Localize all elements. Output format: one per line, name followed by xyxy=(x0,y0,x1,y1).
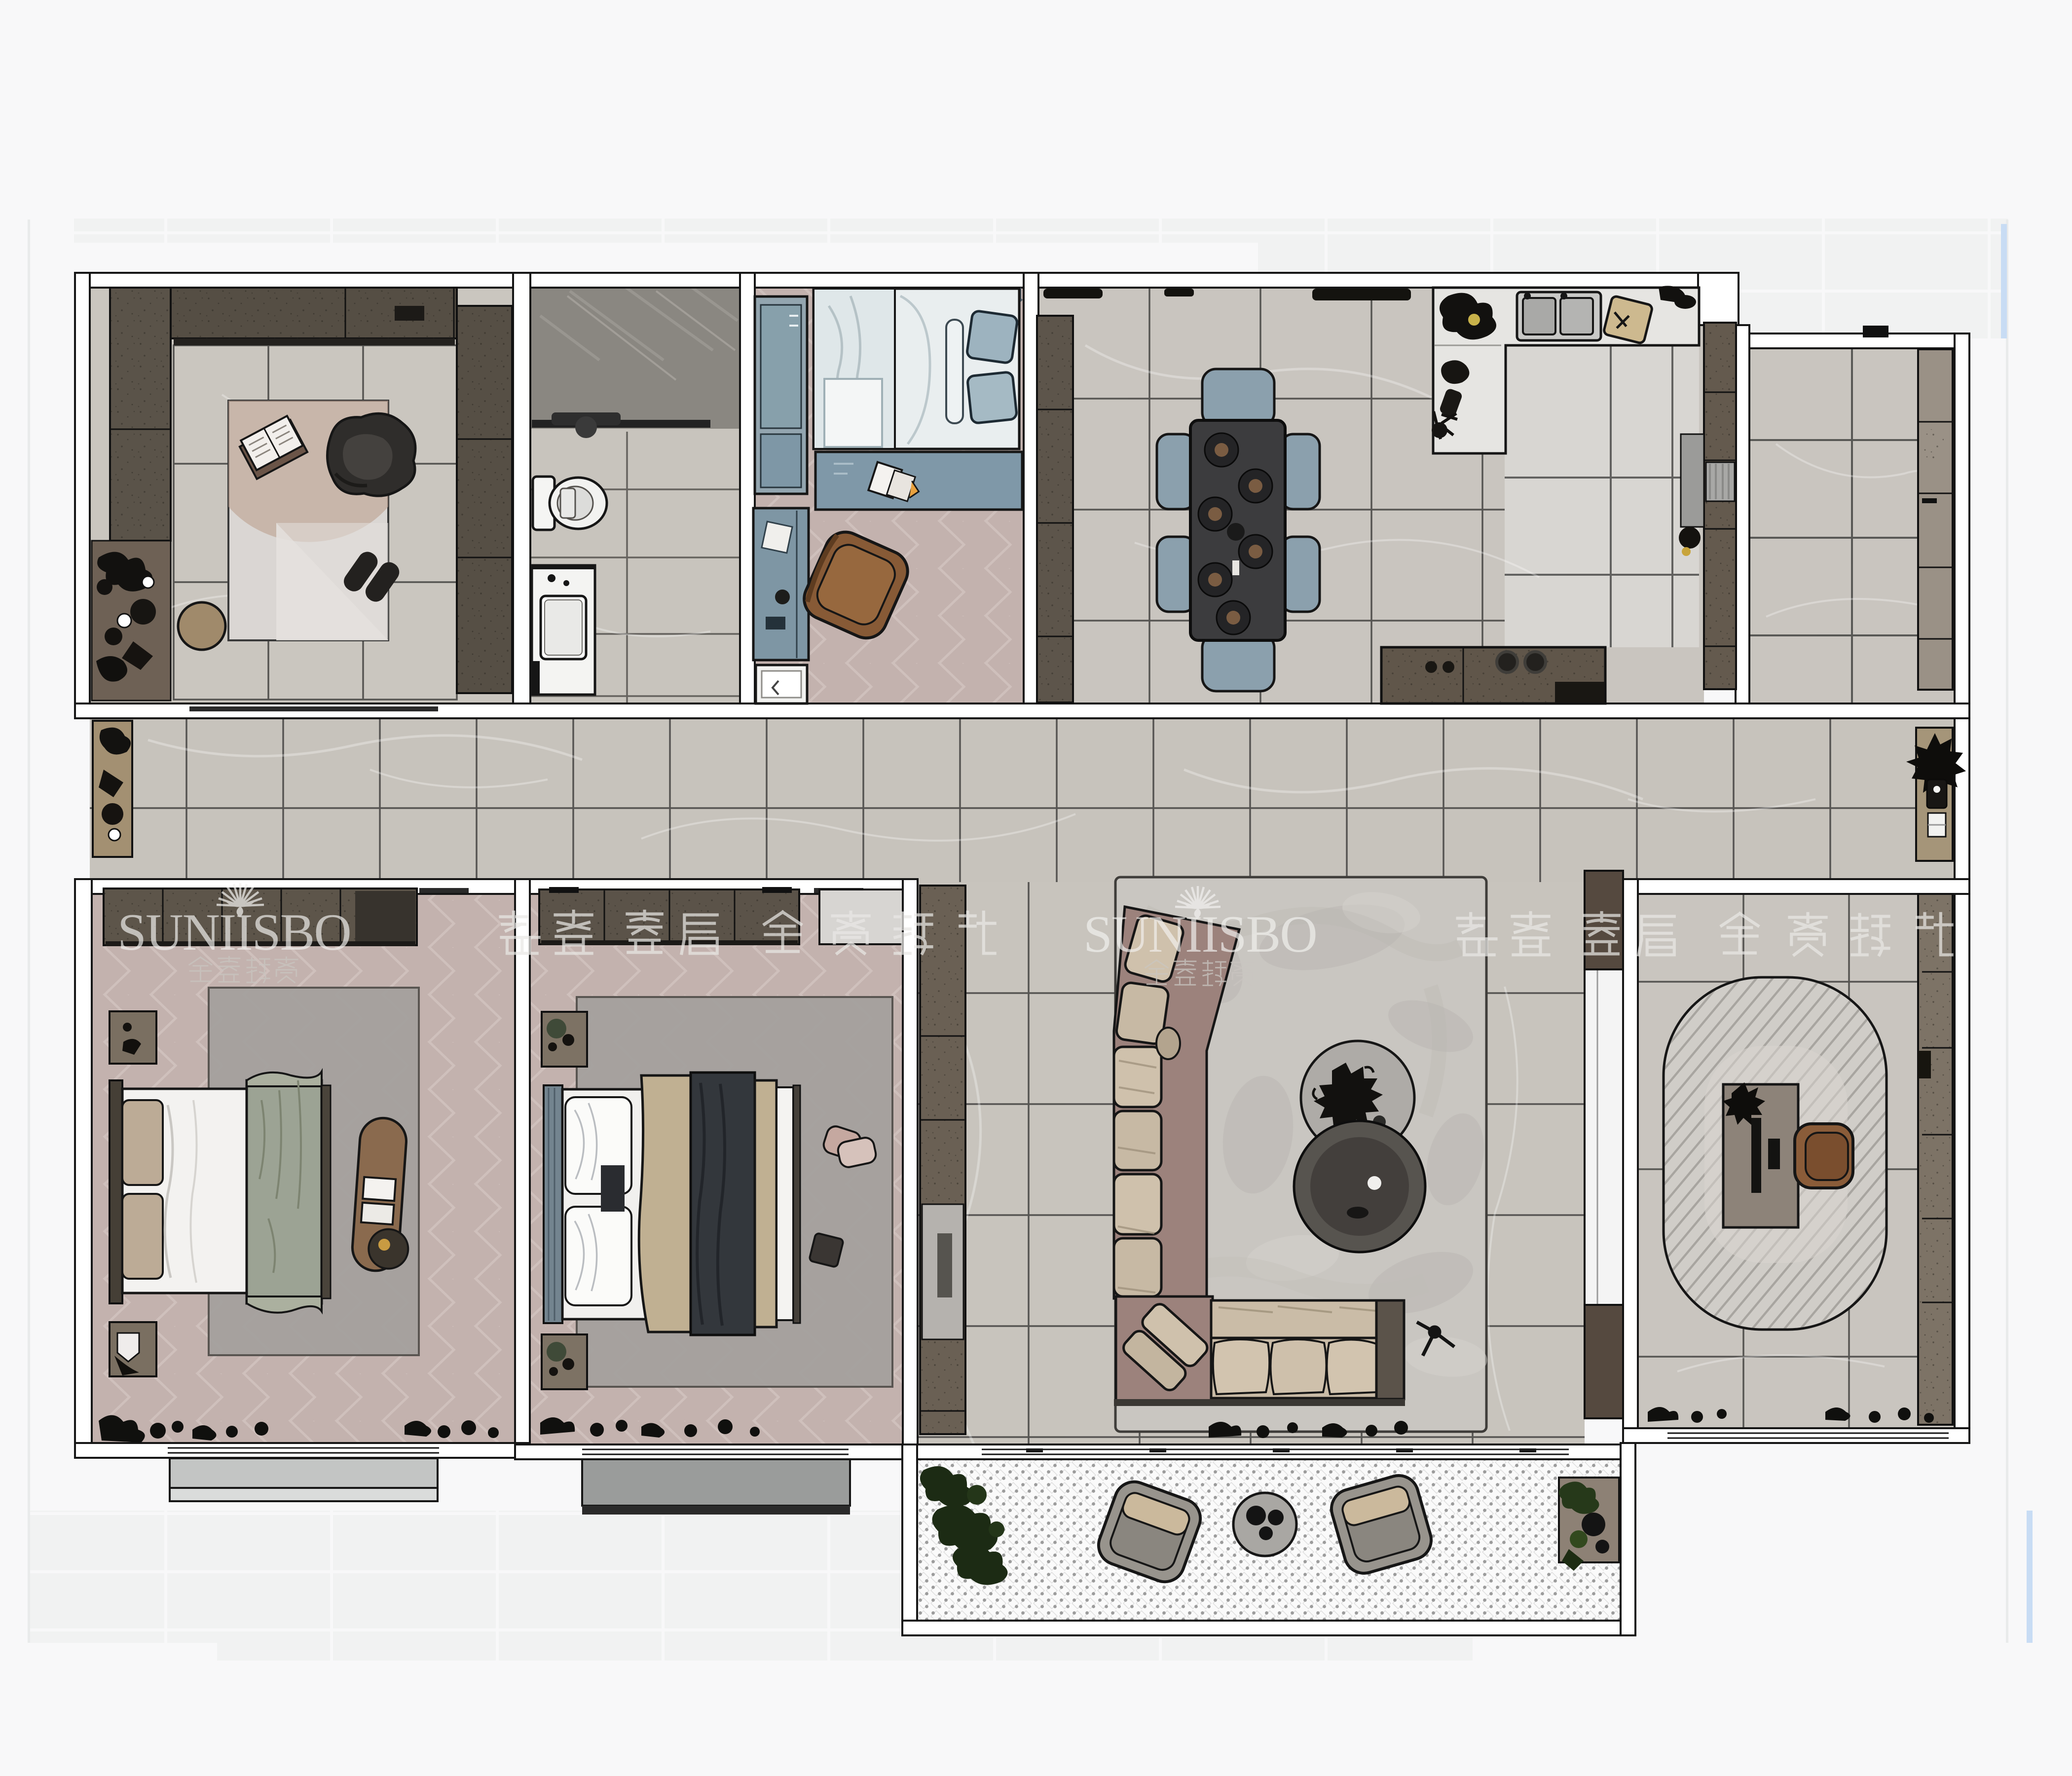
svg-text:SUNIISBO: SUNIISBO xyxy=(117,903,351,961)
